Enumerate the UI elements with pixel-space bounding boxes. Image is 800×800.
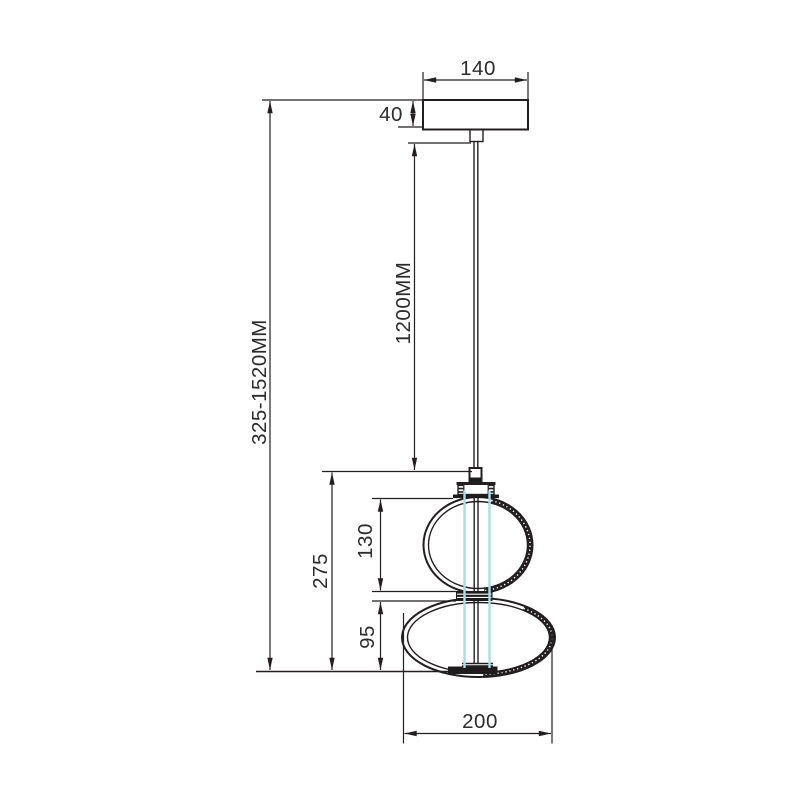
dim-label-canopy-height: 40 [379, 103, 403, 126]
dim-canopy-width: 140 [423, 57, 528, 99]
upper-globe-rib-dots [484, 501, 530, 591]
dim-label-shade-width: 200 [462, 710, 498, 733]
lamp-cap [453, 483, 499, 498]
center-rod [474, 494, 478, 664]
dim-label-shade-height: 275 [309, 553, 332, 589]
dim-label-canopy-width: 140 [460, 57, 496, 80]
dim-lower-globe-height: 95 [356, 602, 381, 670]
dim-label-lower-globe-height: 95 [356, 625, 379, 649]
ceiling-canopy [423, 100, 528, 130]
dim-label-overall-height: 325-1520MM [248, 319, 271, 445]
dim-canopy-height: 40 [379, 101, 422, 127]
led-tube [465, 491, 490, 669]
dim-label-cord-length: 1200MM [392, 262, 415, 345]
cord-ferrule [470, 468, 482, 484]
dim-shade-height: 275 [309, 473, 332, 671]
suspension-cable [474, 142, 478, 470]
globe-junction-band [456, 591, 493, 601]
lower-globe-rib-dots [483, 608, 552, 674]
dim-overall-height: 325-1520MM [248, 100, 423, 670]
page: 140 40 325-1520MM 1200MM 275 [0, 0, 800, 800]
cap-flange [453, 495, 499, 499]
upper-globe-ribbed-edge [484, 501, 530, 591]
canopy-cord-connector [470, 130, 483, 142]
dim-label-upper-globe-height: 130 [354, 523, 377, 559]
dim-cord-length: 1200MM [392, 143, 471, 470]
pendant-lamp-dimension-drawing: 140 40 325-1520MM 1200MM 275 [0, 0, 800, 800]
